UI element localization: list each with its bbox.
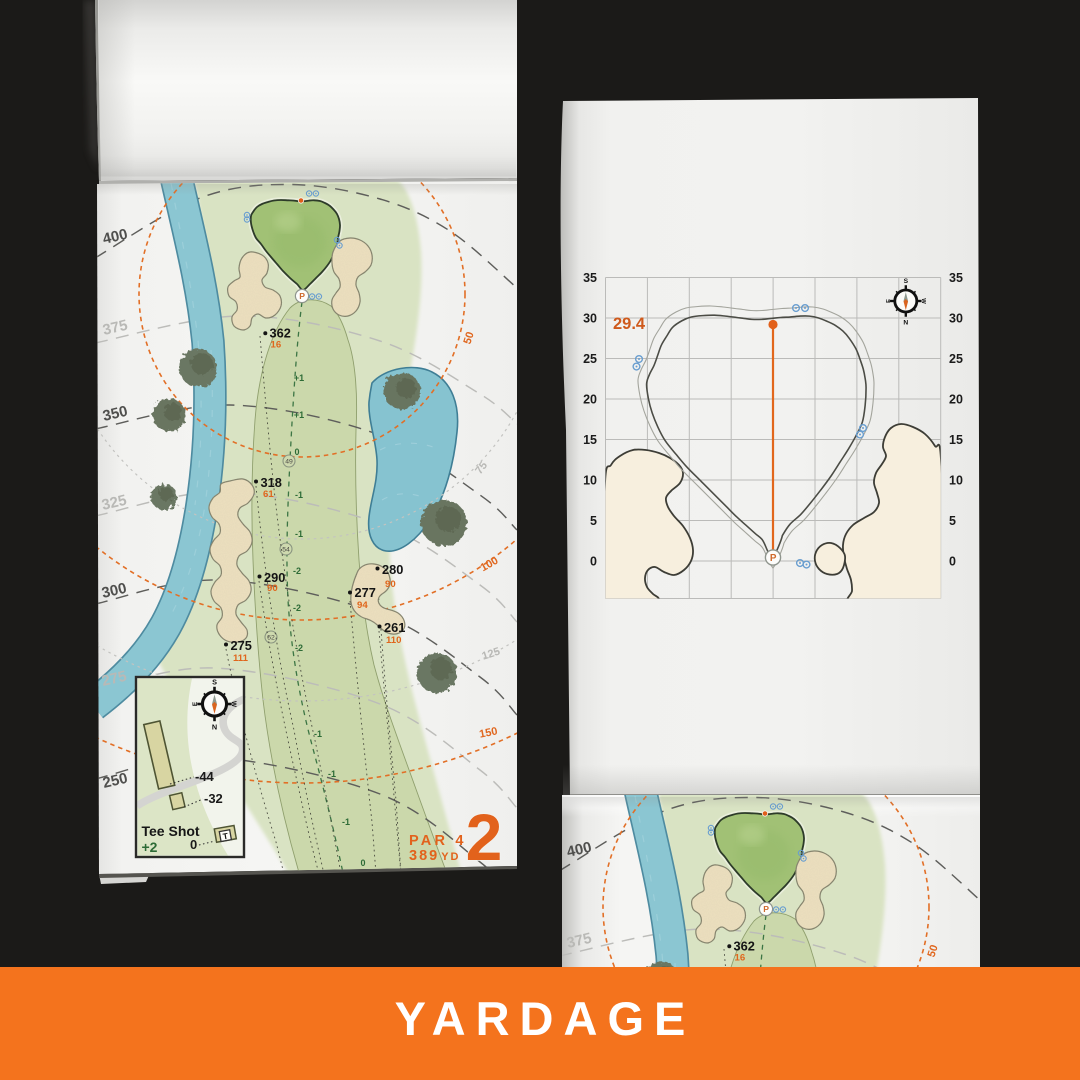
- svg-text:5: 5: [949, 514, 956, 528]
- svg-text:0: 0: [590, 554, 597, 568]
- svg-text:29.4: 29.4: [613, 315, 646, 333]
- svg-text:YARDAGE: YARDAGE: [395, 992, 696, 1045]
- svg-text:20: 20: [583, 392, 597, 406]
- svg-text:35: 35: [583, 271, 597, 285]
- svg-text:35: 35: [949, 271, 963, 285]
- svg-text:15: 15: [949, 433, 963, 447]
- svg-text:30: 30: [583, 311, 597, 325]
- svg-text:25: 25: [949, 352, 963, 366]
- svg-text:30: 30: [949, 311, 963, 325]
- svg-text:10: 10: [949, 473, 963, 487]
- svg-text:0: 0: [949, 554, 956, 568]
- svg-text:25: 25: [583, 352, 597, 366]
- svg-text:10: 10: [583, 473, 597, 487]
- svg-text:5: 5: [590, 514, 597, 528]
- svg-text:20: 20: [949, 392, 963, 406]
- svg-text:15: 15: [583, 433, 597, 447]
